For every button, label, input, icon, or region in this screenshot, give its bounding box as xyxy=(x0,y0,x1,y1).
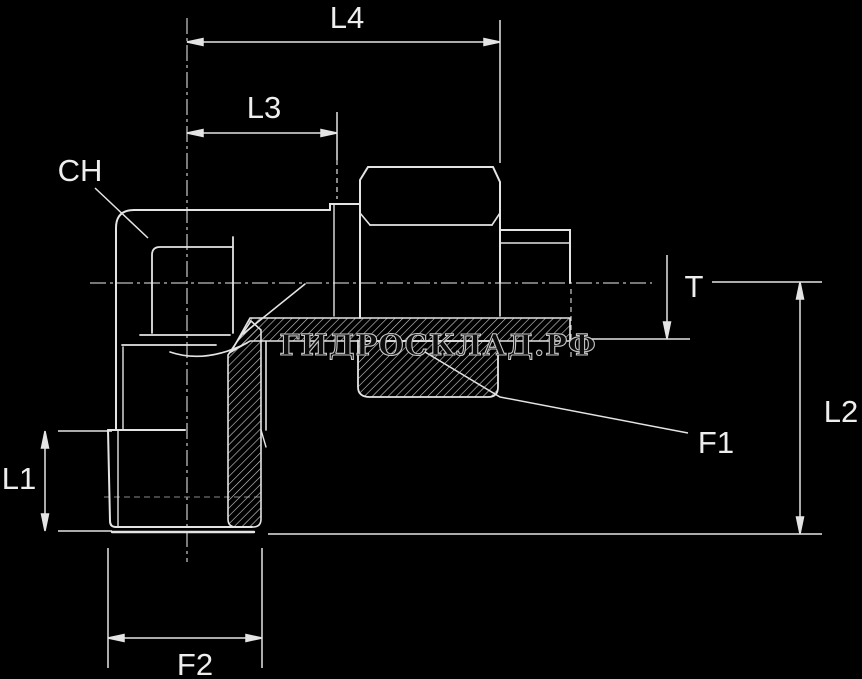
technical-drawing-canvas: L4 L3 CH T L2 L1 F1 F2 ГИДРОСКЛАД.РФ xyxy=(0,0,862,679)
label-l4: L4 xyxy=(330,0,364,35)
label-l1: L1 xyxy=(2,461,36,496)
fitting-diagram: L4 L3 CH T L2 L1 F1 F2 ГИДРОСКЛАД.РФ xyxy=(0,0,862,679)
label-ch: CH xyxy=(58,153,103,188)
label-t: T xyxy=(685,269,704,304)
label-f2: F2 xyxy=(177,647,213,679)
centerlines xyxy=(90,18,652,562)
label-f1: F1 xyxy=(698,425,734,460)
label-l2: L2 xyxy=(824,394,858,429)
watermark-text: ГИДРОСКЛАД.РФ xyxy=(279,328,596,362)
label-l3: L3 xyxy=(247,90,281,125)
hatch-leg-wall xyxy=(228,321,261,527)
